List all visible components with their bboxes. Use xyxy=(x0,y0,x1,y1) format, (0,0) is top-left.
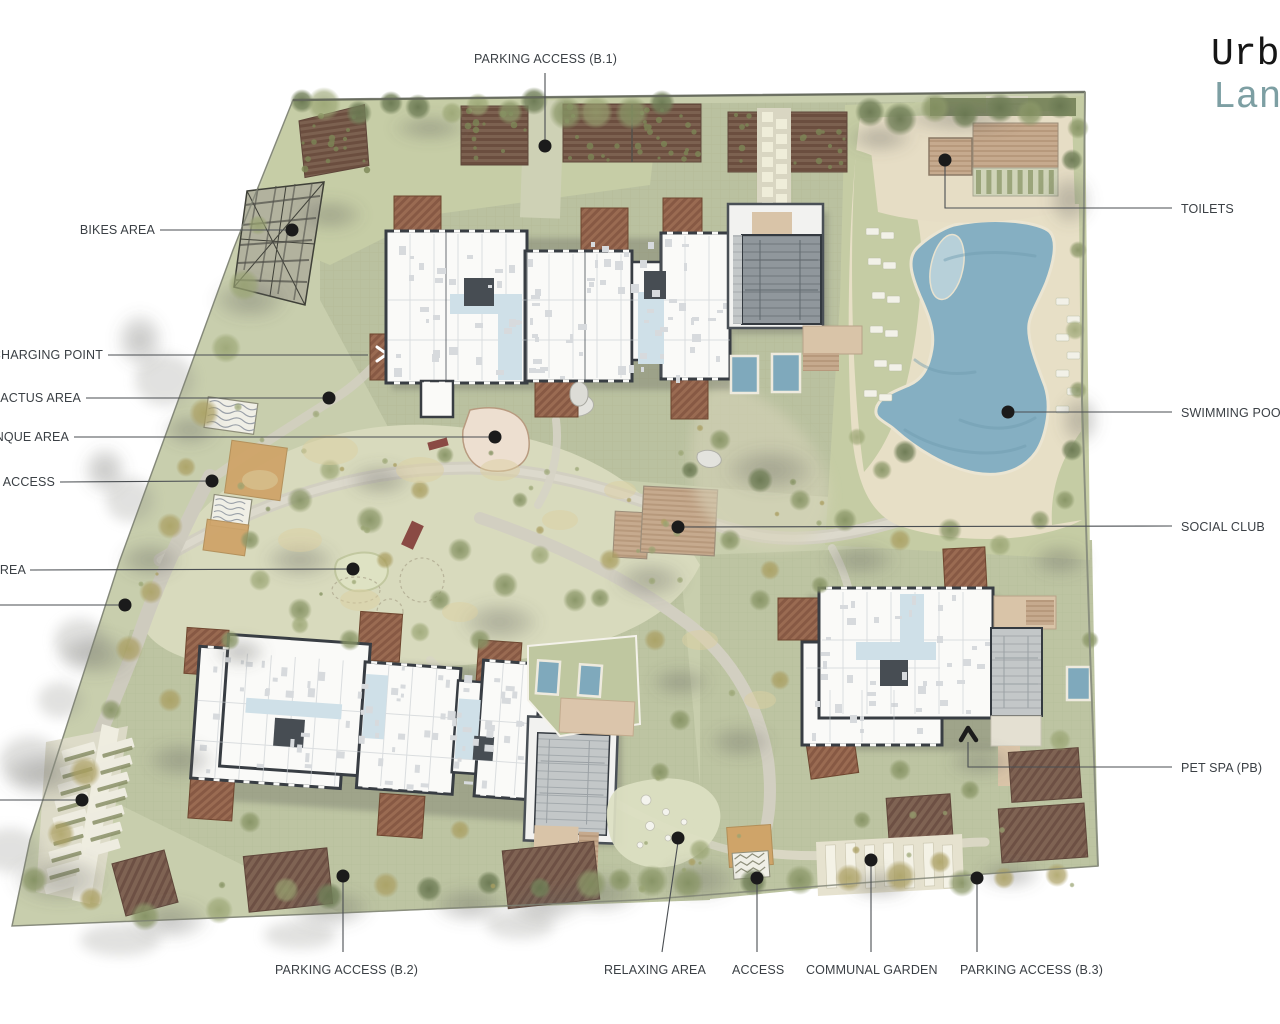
svg-text:PARKING ACCESS (B.2): PARKING ACCESS (B.2) xyxy=(275,963,418,977)
svg-text:COMMUNAL GARDEN: COMMUNAL GARDEN xyxy=(806,963,938,977)
svg-text:TOILETS: TOILETS xyxy=(1181,202,1234,216)
svg-text:SOCIAL CLUB: SOCIAL CLUB xyxy=(1181,520,1265,534)
svg-text:RELAXING AREA: RELAXING AREA xyxy=(604,963,706,977)
svg-text:PARKING ACCESS (B.3): PARKING ACCESS (B.3) xyxy=(960,963,1103,977)
svg-text:PET SPA (PB): PET SPA (PB) xyxy=(1181,761,1262,775)
svg-text:NQUE AREA: NQUE AREA xyxy=(0,430,70,444)
svg-text:SWIMMING POOL: SWIMMING POOL xyxy=(1181,406,1280,420)
svg-text:BIKES AREA: BIKES AREA xyxy=(80,223,156,237)
svg-text:REA: REA xyxy=(0,563,27,577)
svg-text:Landscaping: Landscaping xyxy=(1213,76,1280,119)
svg-text:Urbanización: Urbanización xyxy=(1211,33,1280,76)
svg-text:CACTUS AREA: CACTUS AREA xyxy=(0,391,82,405)
svg-text:ACCESS: ACCESS xyxy=(3,475,55,489)
svg-text:CHARGING POINT: CHARGING POINT xyxy=(0,348,103,362)
svg-text:ACCESS: ACCESS xyxy=(732,963,784,977)
svg-text:PARKING ACCESS (B.1): PARKING ACCESS (B.1) xyxy=(474,52,617,66)
